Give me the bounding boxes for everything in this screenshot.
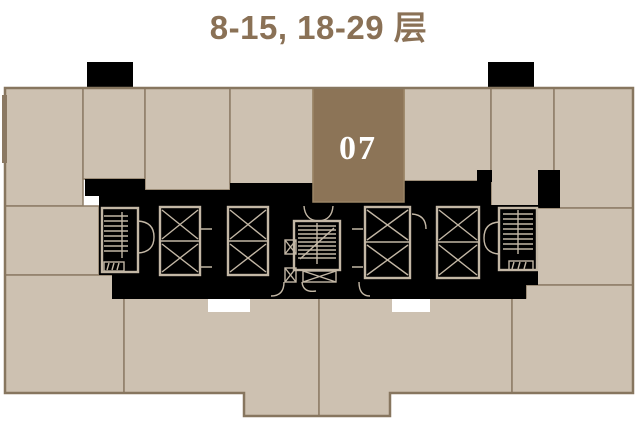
unit-bottom-3 xyxy=(319,298,512,416)
roof-bulkhead-left xyxy=(87,62,133,88)
unit-bottom-1 xyxy=(5,275,124,393)
lightwell-notch-right xyxy=(392,299,430,312)
unit-bottom-4 xyxy=(512,285,633,393)
unit-07[interactable]: 07 xyxy=(313,88,404,202)
floor-plan-svg: 07 xyxy=(0,0,637,421)
unit-top-7 xyxy=(554,88,633,208)
unit-top-5 xyxy=(404,88,491,181)
unit-top-4 xyxy=(230,88,313,184)
unit-left-mid xyxy=(5,206,99,275)
roof-bulkhead-right xyxy=(488,62,534,88)
lightwell-notch-left xyxy=(208,299,250,312)
unit-top-1 xyxy=(5,88,83,206)
unit-07-label: 07 xyxy=(339,130,377,167)
unit-top-2 xyxy=(83,88,145,179)
unit-right-mid xyxy=(537,208,633,285)
floor-plan-page: 8-15, 18-29 层 xyxy=(0,0,637,421)
unit-top-3 xyxy=(145,88,230,190)
left-edge-wall xyxy=(2,95,7,163)
unit-bottom-2 xyxy=(124,298,319,416)
